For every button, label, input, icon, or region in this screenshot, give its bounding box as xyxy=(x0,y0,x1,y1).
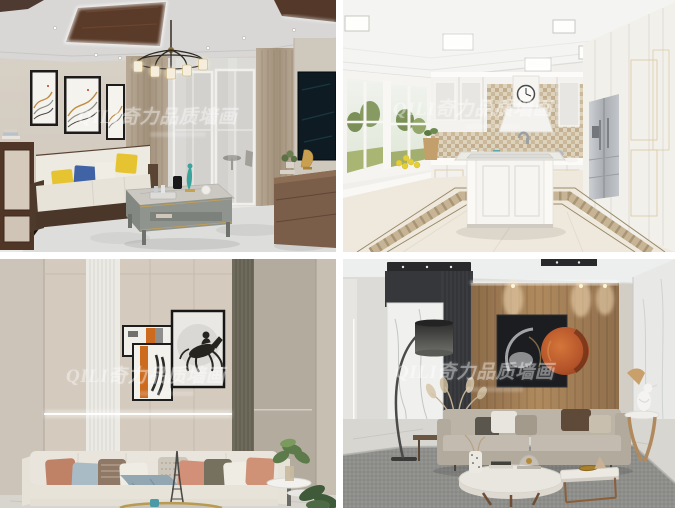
wood-slat-wall-living-room-illustration xyxy=(343,259,675,508)
shelf-books xyxy=(156,214,172,218)
kitchen-island xyxy=(455,152,566,240)
pillow-taupe xyxy=(515,415,537,435)
books xyxy=(489,465,513,469)
pillow-yellow xyxy=(115,153,138,174)
photo-wood-slat-wall-living-room[interactable]: QILI奇力品质墙画 xyxy=(343,259,675,508)
painting-left xyxy=(30,70,58,126)
photo-new-chinese-living-room[interactable]: QILI奇力品质墙画 xyxy=(0,0,336,252)
white-european-kitchen-illustration xyxy=(343,0,675,252)
art-frame-horse xyxy=(172,311,224,387)
pillow-beige xyxy=(589,415,611,433)
fluted-white-column xyxy=(86,259,120,455)
ceiling-track xyxy=(541,259,597,266)
balcony-chair xyxy=(245,150,253,167)
vase xyxy=(285,466,294,481)
photo-collage: QILI奇力品质墙画 xyxy=(0,0,675,508)
pillow-white xyxy=(491,411,517,433)
books xyxy=(280,170,295,174)
new-chinese-living-room-illustration xyxy=(0,0,336,252)
island-glass-top xyxy=(467,154,553,158)
glass-door xyxy=(461,82,481,120)
glass-door xyxy=(559,82,579,126)
photo-horse-art-living-room[interactable]: QILI奇力品质墙画 xyxy=(0,259,336,508)
fridge xyxy=(589,94,619,200)
paper-bag xyxy=(423,138,439,160)
side-cabinet xyxy=(0,129,34,250)
olive-slat-panel xyxy=(232,259,254,451)
photo-grid: QILI奇力品质墙画 xyxy=(0,0,675,508)
teal-cup xyxy=(150,499,159,507)
pillow-chocolate xyxy=(561,409,591,431)
ceiling-track xyxy=(387,262,471,272)
lamp-shade xyxy=(415,323,453,353)
black-vase xyxy=(173,176,182,189)
horse-art-living-room-illustration xyxy=(0,259,336,508)
led-cove xyxy=(471,281,619,285)
water-dispenser xyxy=(592,126,599,138)
photo-white-european-kitchen[interactable]: QILI奇力品质墙画 xyxy=(343,0,675,252)
painting-right xyxy=(106,84,125,140)
art-frame-bottom xyxy=(133,344,172,400)
glass-door xyxy=(435,82,455,120)
painting-center xyxy=(64,76,101,134)
books xyxy=(2,136,20,139)
